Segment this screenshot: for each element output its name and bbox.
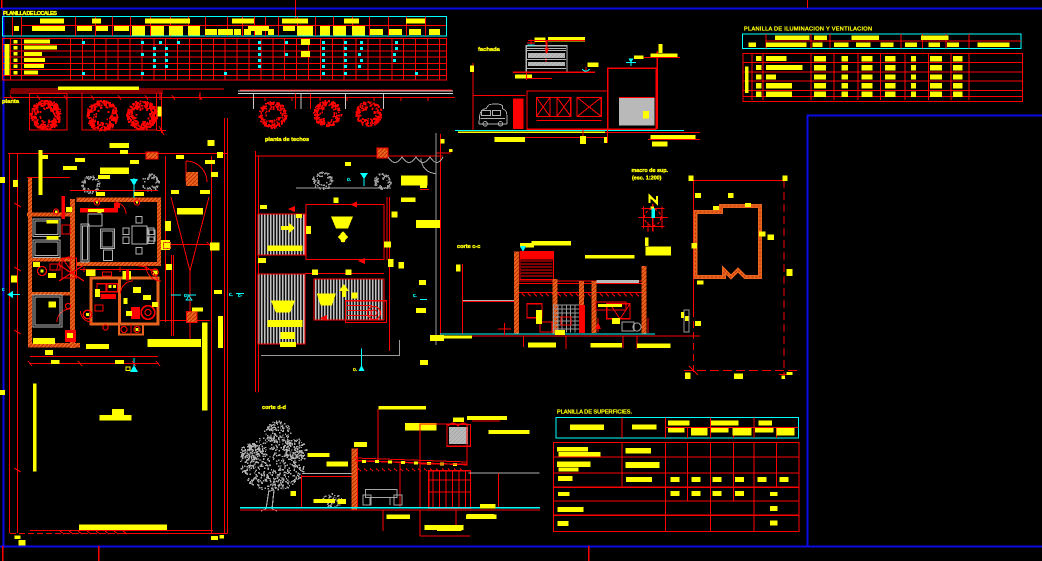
svg-text:c-: c-	[238, 293, 243, 299]
svg-text:planta: planta	[2, 99, 20, 105]
svg-text:(esc. 1:200): (esc. 1:200)	[632, 176, 662, 182]
svg-text:planta de techos: planta de techos	[265, 137, 309, 143]
svg-text:corte c-c: corte c-c	[457, 244, 480, 250]
svg-text:fachada: fachada	[478, 47, 501, 53]
svg-text:c.: c.	[229, 292, 233, 298]
svg-text:PLANILLA DE SUPERFICIES.: PLANILLA DE SUPERFICIES.	[557, 410, 632, 416]
svg-text:o.: o.	[347, 177, 351, 183]
svg-text:c.: c.	[413, 293, 417, 299]
svg-text:macro de sup.: macro de sup.	[632, 168, 669, 174]
svg-text:PLANILLA DE ILUMINACION Y VENT: PLANILLA DE ILUMINACION Y VENTILACION	[744, 27, 872, 33]
svg-text:corte d-d: corte d-d	[262, 405, 287, 411]
svg-text:o.: o.	[353, 367, 357, 373]
